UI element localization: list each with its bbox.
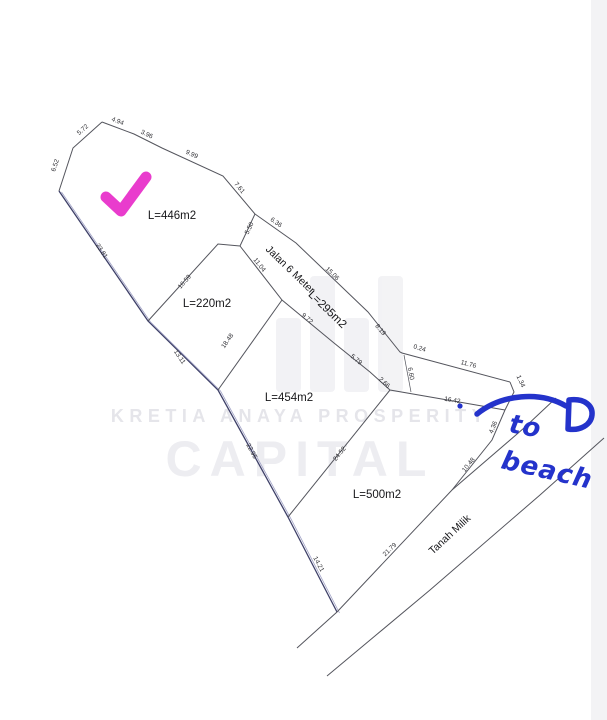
dimension-label: 16.59: [177, 273, 193, 290]
watermark-brand-word: CAPITAL: [166, 431, 435, 487]
beach-arrow-head-icon: [568, 400, 592, 430]
pen-dot: [457, 403, 462, 408]
dimension-label: 3.96: [139, 129, 154, 141]
land-plot-map: KRETIA ANAYA PROSPERITY CAPITAL 4.943.96…: [0, 0, 607, 720]
dimension-label: 0.24: [412, 343, 427, 354]
dimension-label: 6.60: [406, 367, 415, 381]
dimension-label: 18.48: [220, 332, 235, 350]
plot-446-label: L=446m2: [148, 210, 196, 222]
plot-454-label: L=454m2: [265, 392, 313, 404]
dimension-label: 6.52: [50, 158, 61, 173]
to-beach-annotation: to beach: [457, 397, 595, 496]
watermark-brand-name: KRETIA ANAYA PROSPERITY: [111, 406, 489, 426]
tanah-milik-label: Tanah Milik: [427, 512, 474, 557]
dimension-label: 14.21: [311, 555, 325, 573]
dimension-label: 11.76: [460, 359, 477, 370]
site-plan-page: KRETIA ANAYA PROSPERITY CAPITAL 4.943.96…: [0, 0, 607, 720]
dimension-label: 13.11: [172, 349, 187, 366]
pink-checkmark-annotation: [106, 177, 146, 211]
dimension-label: 1.34: [515, 374, 527, 389]
to-beach-word-to: to: [507, 409, 544, 444]
dimension-label: 7.61: [232, 181, 246, 195]
plot-220-label: L=220m2: [183, 298, 231, 310]
dimension-label: 5.50: [244, 221, 256, 236]
dimension-label: 6.36: [269, 216, 284, 229]
plot-500-label: L=500m2: [353, 489, 401, 501]
page-edge-shade: [591, 0, 607, 720]
jalan-6-meter-label: Jalan 6 Meter: [263, 243, 317, 296]
